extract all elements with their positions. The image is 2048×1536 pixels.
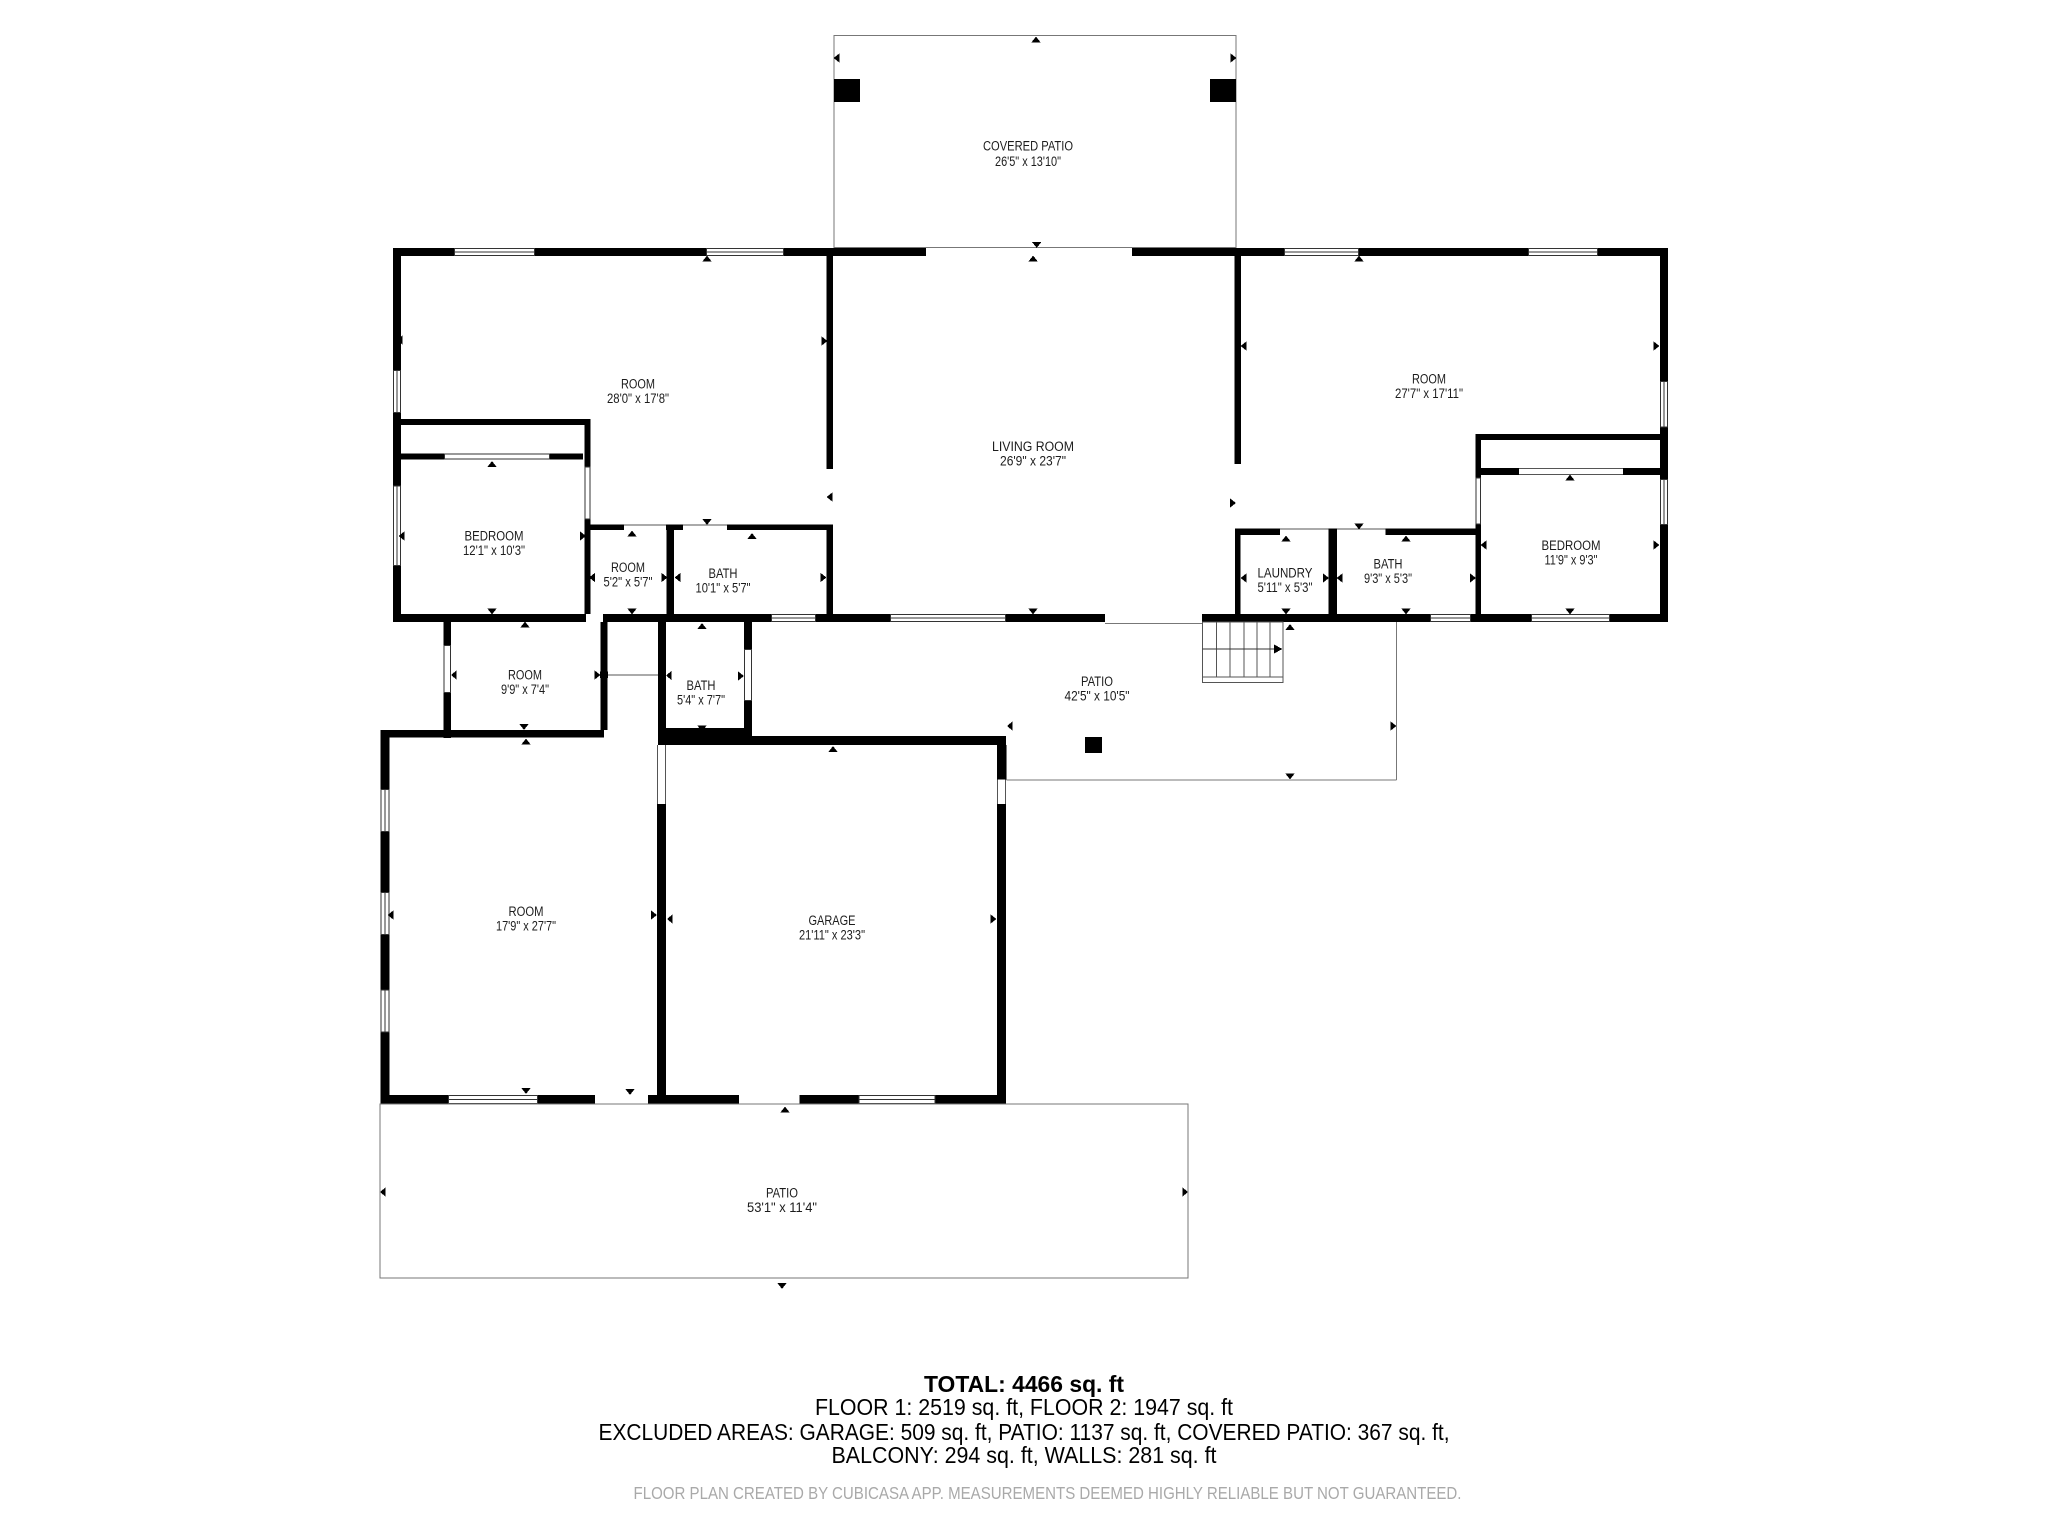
svg-text:10'1" x 5'7": 10'1" x 5'7"	[696, 580, 751, 595]
svg-text:FLOOR PLAN CREATED BY CUBICASA: FLOOR PLAN CREATED BY CUBICASA APP. MEAS…	[634, 1483, 1462, 1503]
svg-text:PATIO: PATIO	[1081, 674, 1113, 689]
svg-text:5'2" x 5'7": 5'2" x 5'7"	[604, 574, 653, 589]
svg-text:LIVING ROOM: LIVING ROOM	[992, 439, 1074, 454]
svg-text:BEDROOM: BEDROOM	[465, 529, 524, 544]
svg-text:42'5" x 10'5": 42'5" x 10'5"	[1065, 688, 1130, 703]
svg-text:26'5" x 13'10": 26'5" x 13'10"	[995, 154, 1061, 169]
svg-text:PATIO: PATIO	[766, 1186, 798, 1201]
svg-text:ROOM: ROOM	[611, 560, 645, 575]
svg-text:28'0" x 17'8": 28'0" x 17'8"	[607, 391, 669, 406]
svg-text:9'9" x 7'4": 9'9" x 7'4"	[501, 682, 549, 697]
svg-text:26'9" x 23'7": 26'9" x 23'7"	[1000, 453, 1066, 468]
svg-text:ROOM: ROOM	[1412, 372, 1446, 387]
svg-text:LAUNDRY: LAUNDRY	[1258, 566, 1313, 581]
svg-text:5'4" x 7'7": 5'4" x 7'7"	[677, 692, 725, 707]
svg-text:5'11" x 5'3": 5'11" x 5'3"	[1258, 580, 1313, 595]
svg-text:21'11" x 23'3": 21'11" x 23'3"	[799, 927, 865, 942]
svg-text:ROOM: ROOM	[621, 377, 655, 392]
svg-text:11'9" x 9'3": 11'9" x 9'3"	[1545, 552, 1598, 567]
svg-text:ROOM: ROOM	[508, 668, 542, 683]
svg-text:BATH: BATH	[1374, 557, 1403, 572]
svg-text:12'1" x 10'3": 12'1" x 10'3"	[463, 543, 525, 558]
svg-text:BEDROOM: BEDROOM	[1542, 538, 1601, 553]
svg-text:COVERED PATIO: COVERED PATIO	[983, 139, 1073, 154]
svg-text:9'3" x 5'3": 9'3" x 5'3"	[1364, 571, 1412, 586]
svg-text:BATH: BATH	[709, 566, 738, 581]
svg-text:17'9" x 27'7": 17'9" x 27'7"	[496, 918, 556, 933]
svg-text:ROOM: ROOM	[509, 904, 544, 919]
svg-text:FLOOR 1: 2519 sq. ft, FLOOR 2:: FLOOR 1: 2519 sq. ft, FLOOR 2: 1947 sq. …	[815, 1394, 1234, 1420]
svg-text:BALCONY: 294 sq. ft, WALLS: 28: BALCONY: 294 sq. ft, WALLS: 281 sq. ft	[832, 1442, 1218, 1468]
svg-text:GARAGE: GARAGE	[809, 913, 856, 928]
svg-text:27'7" x 17'11": 27'7" x 17'11"	[1395, 386, 1463, 401]
svg-text:BATH: BATH	[687, 678, 716, 693]
svg-text:53'1" x 11'4": 53'1" x 11'4"	[747, 1200, 817, 1215]
